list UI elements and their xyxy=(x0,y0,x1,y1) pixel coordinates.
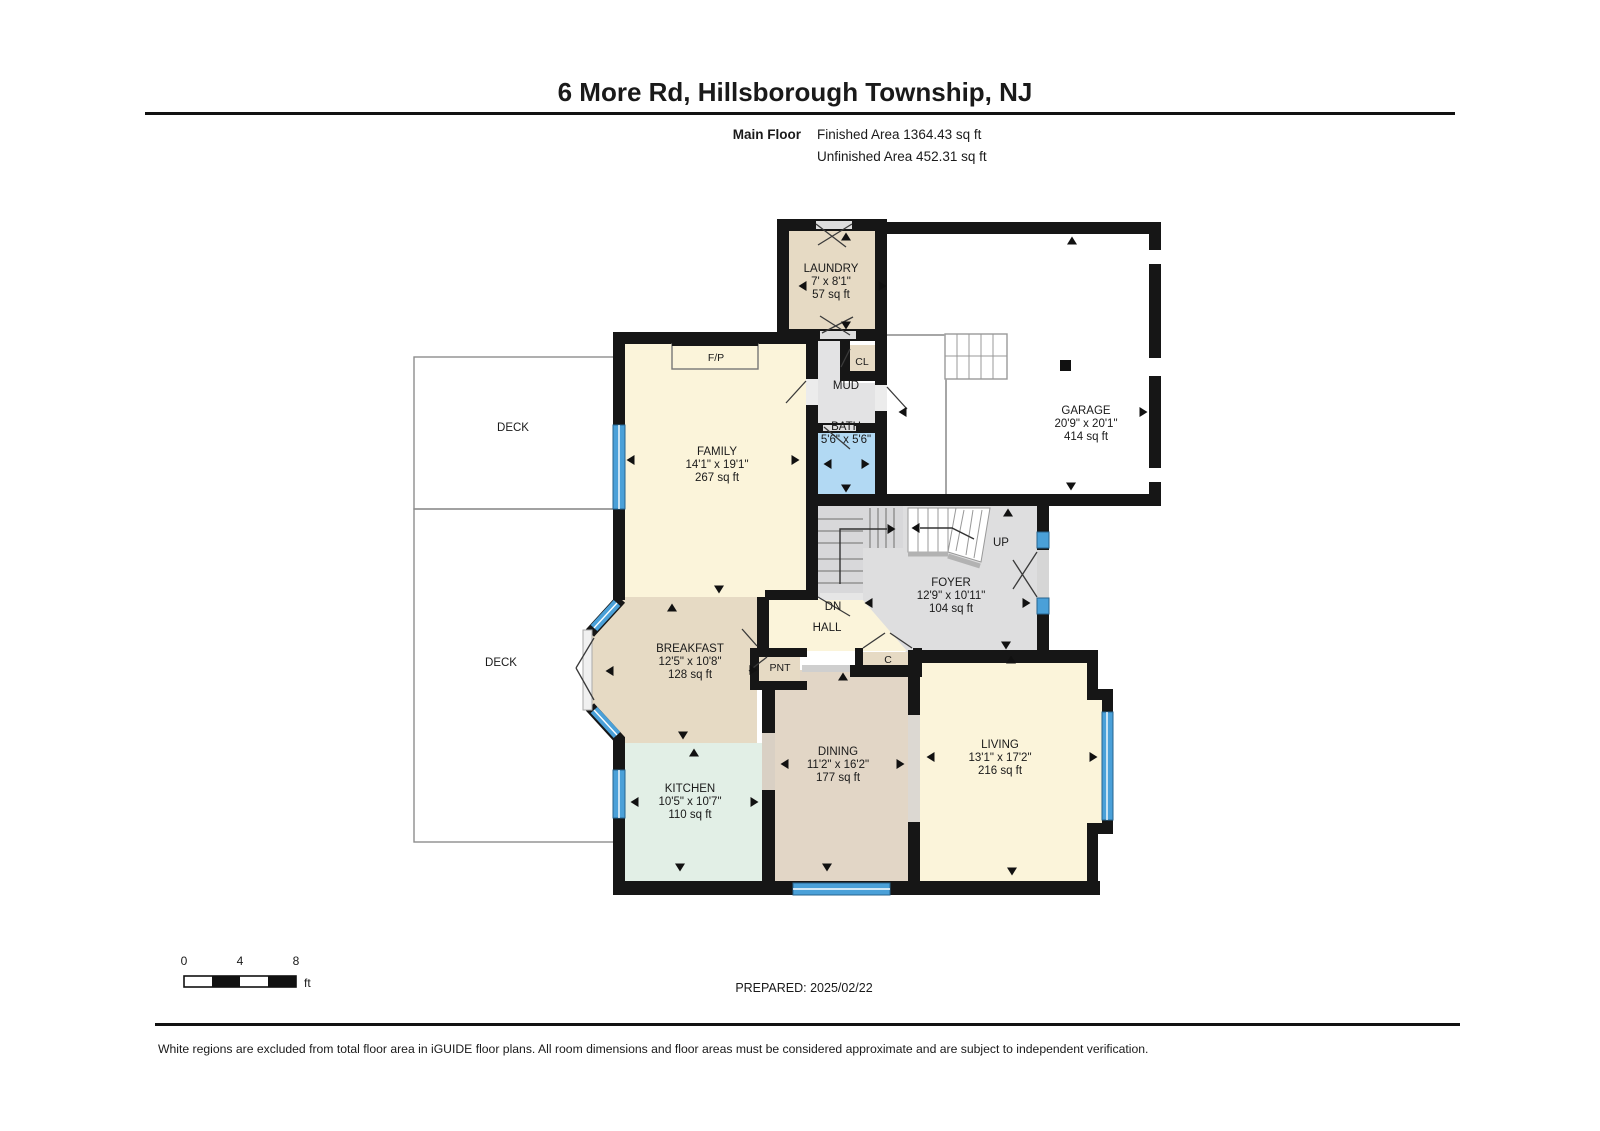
bath-dims: 5'6" x 5'6" xyxy=(821,434,871,446)
breakfast-dims: 12'5" x 10'8" xyxy=(658,656,721,668)
family-window xyxy=(613,425,625,509)
living-window xyxy=(1102,712,1113,820)
kitchen-window xyxy=(613,770,625,818)
garage-area: 414 sq ft xyxy=(1064,431,1109,443)
laundry-dims: 7' x 8'1" xyxy=(811,276,851,288)
floorplan-page: 6 More Rd, Hillsborough Township, NJ Mai… xyxy=(0,0,1600,1131)
kitchen-area: 110 sq ft xyxy=(668,809,712,821)
mud-name: MUD xyxy=(833,380,859,392)
foyer-dims: 12'9" x 10'11" xyxy=(917,590,986,602)
foyer-area: 104 sq ft xyxy=(929,603,974,615)
family-name: FAMILY xyxy=(697,446,737,458)
kitchen-name: KITCHEN xyxy=(665,783,715,795)
stairs-down-label: DN xyxy=(825,601,842,613)
deck-lower-label: DECK xyxy=(485,657,517,669)
breakfast-name: BREAKFAST xyxy=(656,643,724,655)
stairs-garage xyxy=(887,334,1071,494)
deck-upper-label: DECK xyxy=(497,422,529,434)
scale-bar: 0 4 8 ft xyxy=(181,954,312,990)
disclaimer-text: White regions are excluded from total fl… xyxy=(158,1042,1148,1056)
garage-post xyxy=(1060,360,1071,371)
foyer-name: FOYER xyxy=(931,577,971,589)
page-title: 6 More Rd, Hillsborough Township, NJ xyxy=(558,77,1033,107)
footer-divider xyxy=(155,1023,1460,1026)
living-name: LIVING xyxy=(981,739,1019,751)
living-dims: 13'1" x 17'2" xyxy=(968,752,1031,764)
fireplace-label: F/P xyxy=(708,352,724,364)
dining-dims: 11'2" x 16'2" xyxy=(807,759,869,771)
breakfast-area: 128 sq ft xyxy=(668,669,713,681)
prepared-date: PREPARED: 2025/02/22 xyxy=(735,981,872,995)
dining-window xyxy=(793,883,890,895)
family-area: 267 sq ft xyxy=(695,472,740,484)
bath-name: BATH xyxy=(831,421,861,433)
closet-name: CL xyxy=(855,356,869,368)
laundry-area: 57 sq ft xyxy=(812,289,851,301)
scale-tick-0: 0 xyxy=(181,954,188,968)
dining-name: DINING xyxy=(818,746,858,758)
coat-name: C xyxy=(884,654,892,666)
garage-dims: 20'9" x 20'1" xyxy=(1054,418,1117,430)
family-dims: 14'1" x 19'1" xyxy=(685,459,748,471)
pantry-name: PNT xyxy=(770,662,792,674)
scale-tick-8: 8 xyxy=(293,954,300,968)
unfinished-area-label: Unfinished Area 452.31 sq ft xyxy=(817,149,987,164)
laundry-name: LAUNDRY xyxy=(804,263,859,275)
kitchen-dims: 10'5" x 10'7" xyxy=(658,796,721,808)
header: 6 More Rd, Hillsborough Township, NJ Mai… xyxy=(145,77,1455,164)
living-area: 216 sq ft xyxy=(978,765,1023,777)
title-divider xyxy=(145,112,1455,115)
floor-label: Main Floor xyxy=(733,127,802,142)
scale-tick-4: 4 xyxy=(237,954,244,968)
floorplan-canvas: 6 More Rd, Hillsborough Township, NJ Mai… xyxy=(0,0,1600,1131)
hall-name: HALL xyxy=(813,622,842,634)
finished-area-label: Finished Area 1364.43 sq ft xyxy=(817,127,982,142)
dining-area: 177 sq ft xyxy=(816,772,861,784)
footer: PREPARED: 2025/02/22 White regions are e… xyxy=(155,981,1460,1056)
stairs-up-label: UP xyxy=(993,537,1009,549)
garage-name: GARAGE xyxy=(1061,405,1111,417)
scale-unit: ft xyxy=(304,976,311,990)
